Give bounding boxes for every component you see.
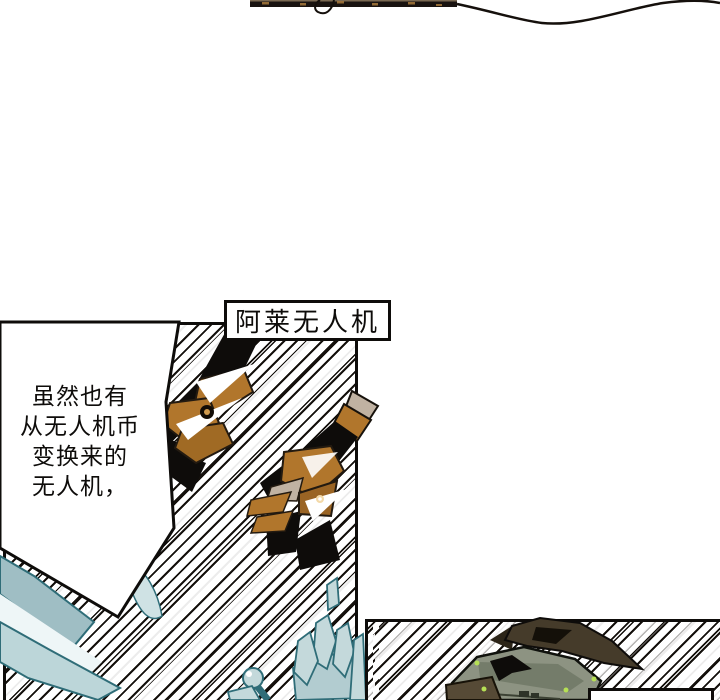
hook-curl [315,0,334,13]
panel-label: 阿莱无人机 [224,300,391,341]
panel-label-text: 阿莱无人机 [235,302,380,339]
bar-specks [262,1,442,6]
dark-bar [250,0,457,7]
bubble-line: 无人机， [0,471,160,501]
speech-bubble-text: 虽然也有 从无人机币 变换来的 无人机， [0,381,160,501]
label-box-partial [588,688,714,700]
top-panel-remnant [0,0,720,30]
main-panel [3,322,358,700]
bubble-line: 从无人机币 [0,411,160,441]
bubble-line: 虽然也有 [0,381,160,411]
comic-page: 虽然也有 从无人机币 变换来的 无人机， 阿莱无人机 [0,0,720,700]
bubble-line: 变换来的 [0,441,160,471]
contour-line [457,1,720,24]
